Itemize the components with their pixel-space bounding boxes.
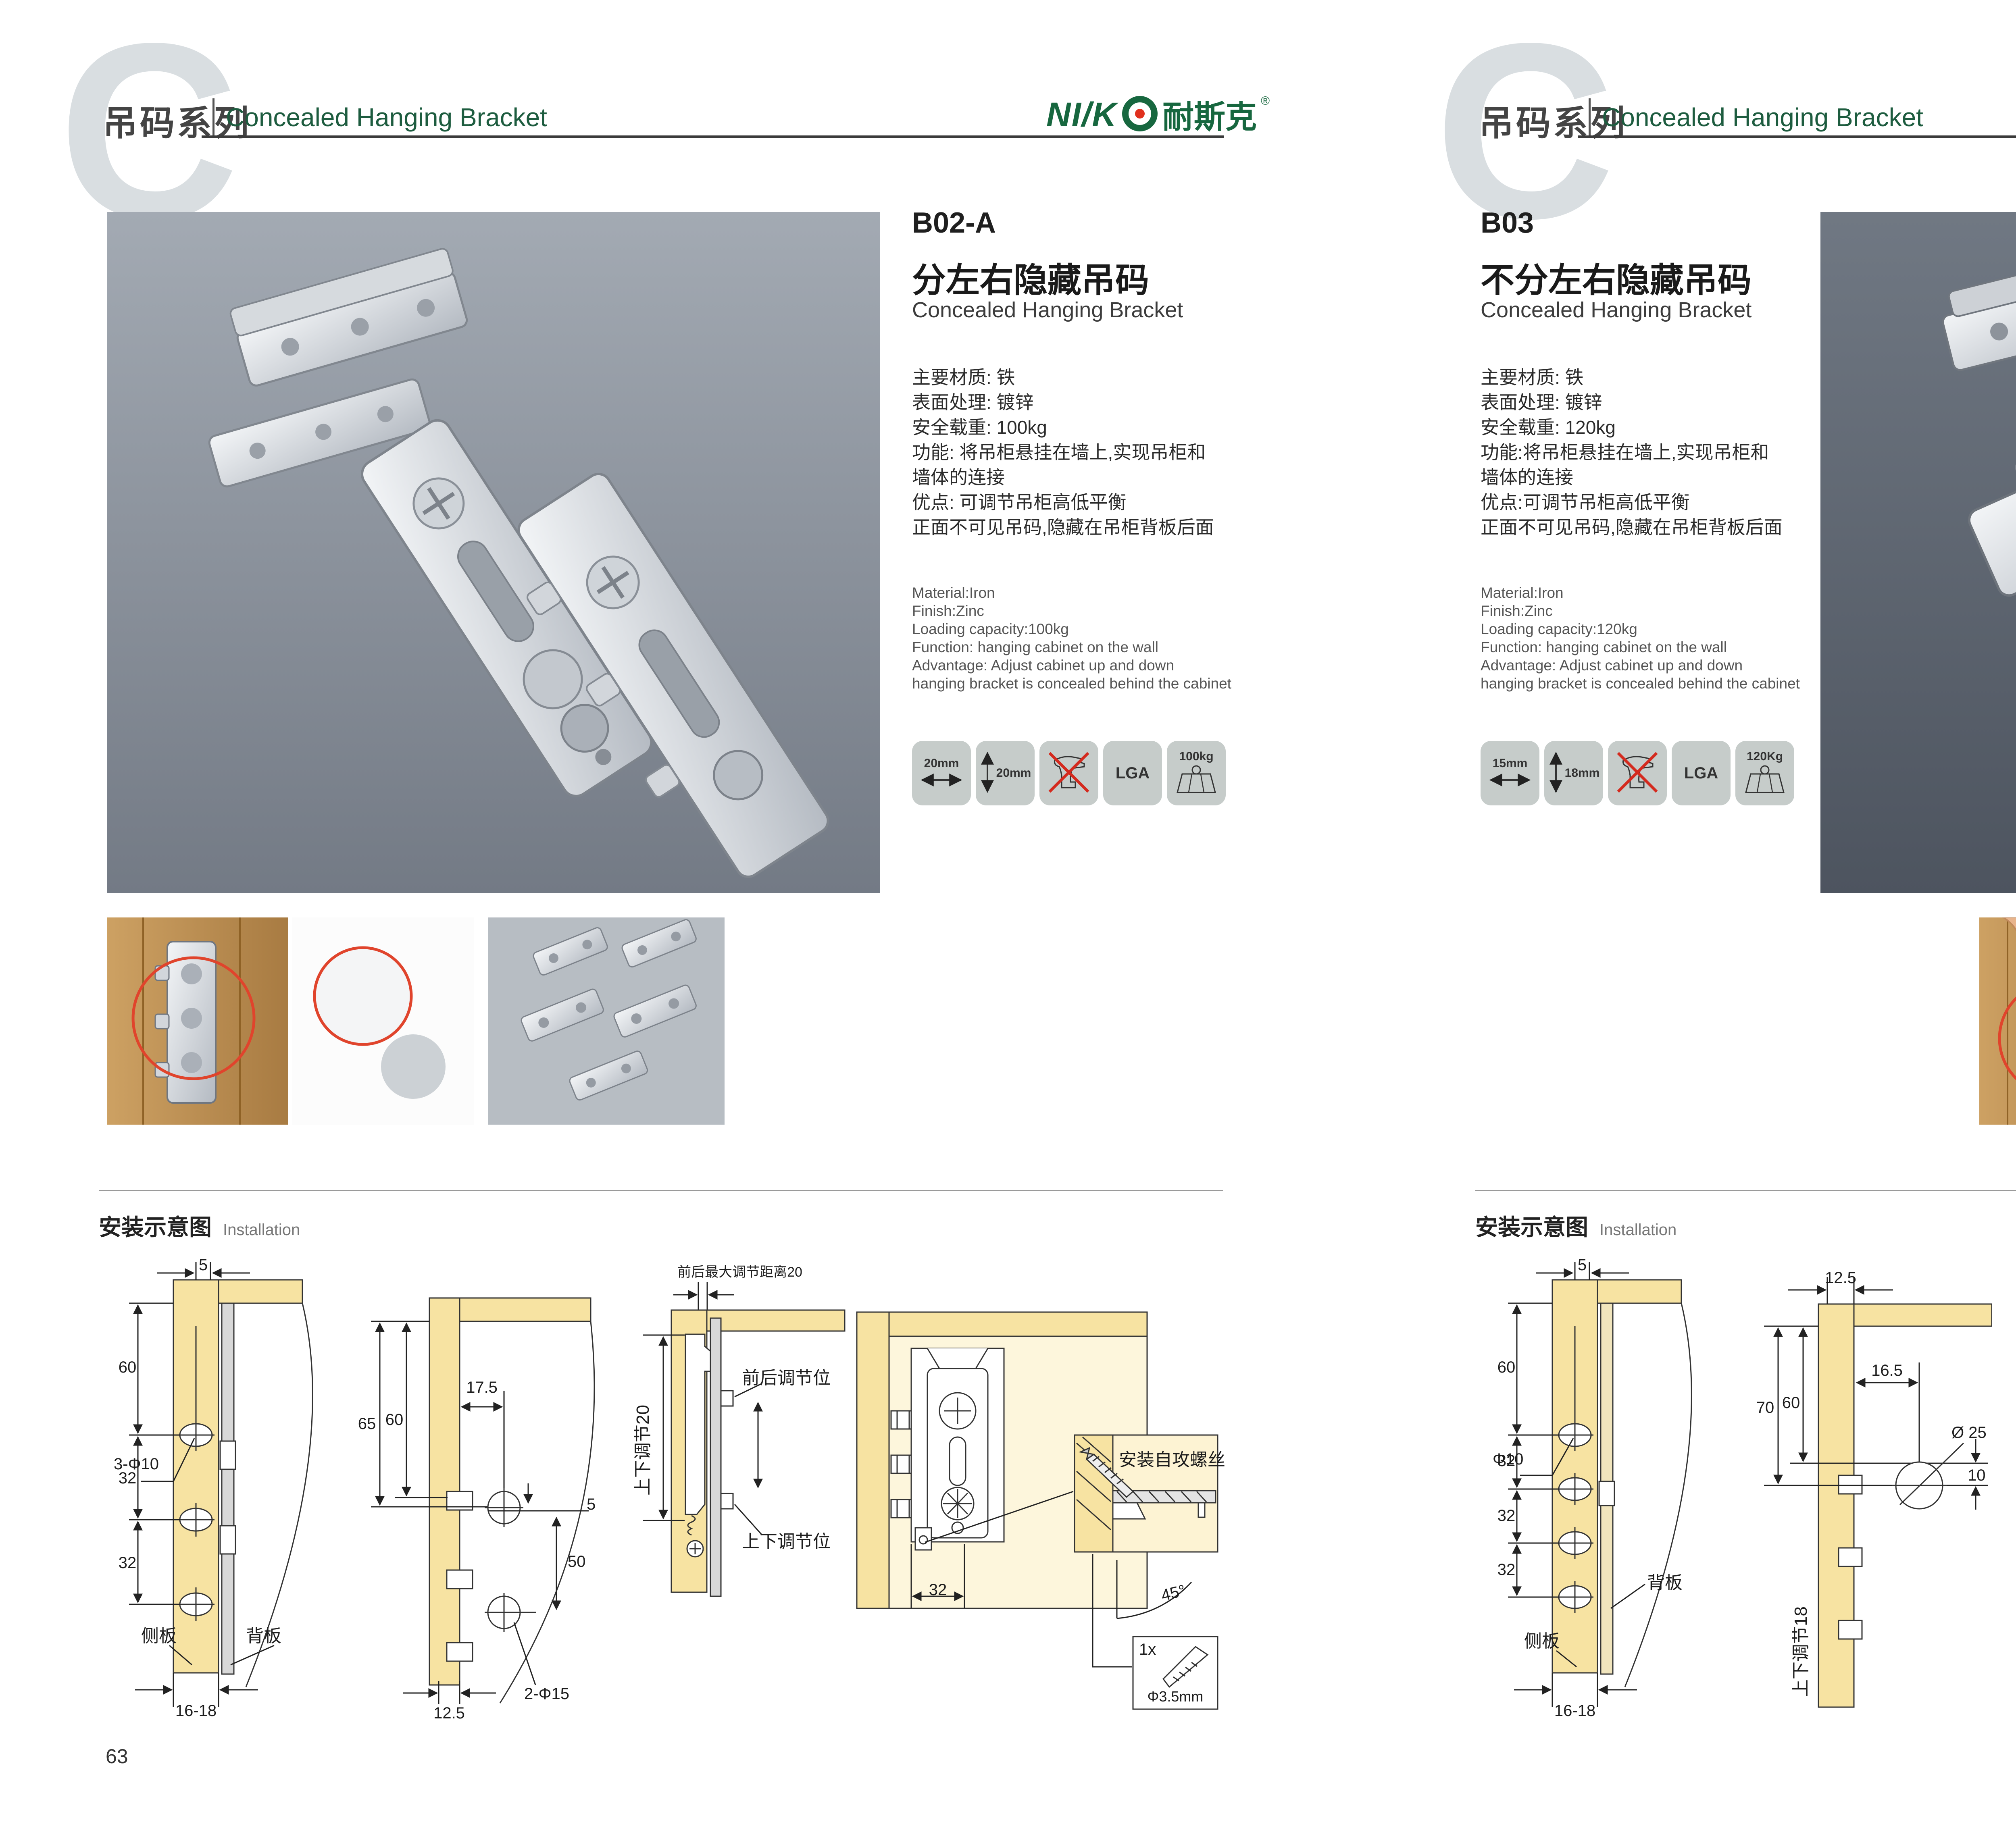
spec-line: hanging bracket is concealed behind the … — [912, 674, 1231, 693]
brand-logo: NI/K 耐斯克 ® — [1046, 92, 1270, 137]
diagram-adjustment-side-view: 前后最大调节距离20 上下调节20 前后调节位 上下调节位 — [621, 1258, 851, 1604]
badge-label: 20mm — [924, 757, 959, 770]
product-photo-b03 — [1820, 212, 2016, 893]
product-code: B02-A — [912, 206, 996, 239]
catalog-spread: C 吊码系列 Concealed Hanging Bracket NI/K 耐斯… — [0, 0, 2016, 1847]
brand-cjk: 耐斯克 — [1162, 92, 1257, 137]
dim-pitch: 32 — [1497, 1507, 1516, 1525]
label-max-adjust: 前后最大调节距离20 — [677, 1261, 802, 1281]
installation-heading-en: Installation — [1599, 1221, 1677, 1239]
thumbnail-parts-set — [488, 917, 725, 1125]
installation-heading: 安装示意图 Installation — [99, 1209, 300, 1242]
vertical-arrow-icon — [1548, 748, 1564, 799]
label-side-panel: 侧板 — [1524, 1627, 1560, 1652]
series-title-en: Concealed Hanging Bracket — [1602, 102, 1923, 132]
dim-top: 12.5 — [1825, 1269, 1856, 1287]
feature-badges: 15mm 18mm LGA 120Kg — [1481, 741, 1794, 805]
badge-label: LGA — [1684, 764, 1718, 782]
diagram-back-panel-drilling: 12.5 70 60 16.5 Ø 25 10 上下调节18 — [1726, 1266, 1992, 1717]
horizontal-arrow-icon — [1486, 772, 1534, 790]
dim-inner: 60 — [385, 1411, 404, 1429]
brand-registered-mark: ® — [1261, 94, 1270, 108]
badge-width: 20mm — [912, 741, 971, 805]
badge-label: 100kg — [1179, 750, 1213, 763]
product-name-cjk: 不分左右隐藏吊码 — [1481, 253, 1752, 302]
spec-line: 功能:将吊柜悬挂在墙上,实现吊柜和 — [1481, 440, 1783, 465]
spec-line: 正面不可见吊码,隐藏在吊柜背板后面 — [1481, 515, 1783, 540]
badge-lga: LGA — [1672, 741, 1731, 805]
installation-heading-en: Installation — [223, 1221, 300, 1239]
badge-width: 15mm — [1481, 741, 1539, 805]
badge-label: 18mm — [1565, 766, 1600, 780]
spec-line: Material:Iron — [912, 584, 1231, 602]
feature-badges: 20mm 20mm LGA 100kg — [912, 741, 1226, 805]
dim-panel-thickness: 16-18 — [175, 1702, 217, 1720]
spec-line: 墙体的连接 — [912, 465, 1214, 490]
dim-outer: 70 — [1756, 1399, 1774, 1417]
product-photo-b02a — [107, 212, 880, 893]
label-screw-qty: 1x — [1139, 1641, 1156, 1659]
dim-top-offset: 60 — [119, 1358, 137, 1377]
spec-line: 主要材质: 铁 — [912, 365, 1214, 390]
badge-load: 120Kg — [1735, 741, 1794, 805]
spec-line: 表面处理: 镀锌 — [1481, 390, 1783, 415]
spec-line: Loading capacity:100kg — [912, 620, 1231, 638]
badge-height: 18mm — [1544, 741, 1603, 805]
weight-icon — [1174, 765, 1218, 797]
spec-line: 安全载重: 100kg — [912, 415, 1214, 440]
installation-heading-cjk: 安装示意图 — [99, 1209, 212, 1242]
badge-label: LGA — [1116, 764, 1150, 782]
header-divider — [212, 98, 215, 137]
no-drill-icon — [1045, 748, 1093, 799]
dim-pitch: 32 — [1497, 1452, 1516, 1470]
spec-line: 墙体的连接 — [1481, 465, 1783, 490]
diagram-bracket-mounted-front: 32 安装自攻螺丝 45° 1x Φ3.5mm — [851, 1302, 1222, 1741]
dim-gap: 5 — [1578, 1256, 1587, 1274]
header-divider — [1589, 98, 1591, 137]
brand-latin: NI/K — [1046, 95, 1117, 134]
thumbnail-installed-on-wood — [107, 917, 288, 1125]
no-drill-icon — [1613, 748, 1662, 799]
spec-line: Function: hanging cabinet on the wall — [1481, 638, 1800, 656]
dim-pitch: 32 — [119, 1469, 137, 1487]
dim-panel-thickness: 16-18 — [1554, 1702, 1595, 1720]
badge-no-drill — [1608, 741, 1667, 805]
badge-no-drill — [1039, 741, 1098, 805]
weight-icon — [1743, 765, 1787, 797]
label-front-back-adjust: 前后调节位 — [742, 1363, 831, 1389]
badge-label: 20mm — [996, 766, 1031, 780]
label-side-panel: 侧板 — [141, 1621, 177, 1647]
spec-line: 正面不可见吊码,隐藏在吊柜背板后面 — [912, 515, 1214, 540]
product-specs-cjk: 主要材质: 铁 表面处理: 镀锌 安全载重: 120kg 功能:将吊柜悬挂在墙上… — [1481, 365, 1783, 540]
dim-pitch: 32 — [119, 1554, 137, 1572]
dim-offset: 10 — [1968, 1466, 1986, 1485]
brand-target-o-icon — [1121, 95, 1158, 134]
spec-line: 优点: 可调节吊柜高低平衡 — [912, 490, 1214, 515]
diagram-side-panel-drilling: 5 60 3-Φ10 32 32 侧板 背板 16-18 — [113, 1262, 355, 1721]
spec-line: hanging bracket is concealed behind the … — [1481, 674, 1800, 693]
dim-edge-to-hole: 16.5 — [1871, 1362, 1903, 1380]
dim-edge-to-hole: 17.5 — [466, 1379, 498, 1397]
spec-line: 安全载重: 120kg — [1481, 415, 1783, 440]
dim-gap: 5 — [199, 1256, 208, 1274]
label-back-panel: 背板 — [1647, 1568, 1683, 1594]
section-divider — [1475, 1190, 2016, 1191]
product-name-en: Concealed Hanging Bracket — [912, 297, 1183, 322]
hole-spec: 2-Φ15 — [524, 1685, 569, 1703]
spec-line: Finish:Zinc — [912, 602, 1231, 620]
label-back-panel: 背板 — [246, 1621, 281, 1647]
dim-bottom: 12.5 — [433, 1704, 465, 1722]
dim-outer: 65 — [358, 1415, 376, 1433]
hole-spec: Ø 25 — [1951, 1424, 1987, 1442]
installation-heading: 安装示意图 Installation — [1475, 1209, 1677, 1242]
dim-pitch: 32 — [1497, 1561, 1516, 1579]
badge-load: 100kg — [1167, 741, 1226, 805]
dim-top-offset: 60 — [1497, 1358, 1516, 1377]
product-name-cjk: 分左右隐藏吊码 — [912, 253, 1149, 302]
spec-line: 主要材质: 铁 — [1481, 365, 1783, 390]
spec-line: Advantage: Adjust cabinet up and down — [912, 656, 1231, 674]
label-vertical-adjust: 上下调节20 — [628, 1405, 654, 1495]
spec-line: Finish:Zinc — [1481, 602, 1800, 620]
spec-line: 优点:可调节吊柜高低平衡 — [1481, 490, 1783, 515]
diagram-side-panel-drilling: 5 60 Φ10 32 32 32 侧板 背板 16-18 — [1492, 1262, 1734, 1721]
label-screw-dia: Φ3.5mm — [1148, 1688, 1204, 1705]
dim-offset: 5 — [587, 1495, 596, 1514]
product-code: B03 — [1481, 206, 1534, 239]
label-self-tapping-screw: 安装自攻螺丝 — [1119, 1445, 1225, 1471]
spec-line: 表面处理: 镀锌 — [912, 390, 1214, 415]
spec-line: Material:Iron — [1481, 584, 1800, 602]
spec-line: 功能: 将吊柜悬挂在墙上,实现吊柜和 — [912, 440, 1214, 465]
dim-system-pitch: 32 — [929, 1581, 947, 1599]
label-vertical-adjust: 上下调节18 — [1786, 1606, 1812, 1697]
product-name-en: Concealed Hanging Bracket — [1481, 297, 1752, 322]
series-title-en: Concealed Hanging Bracket — [226, 102, 547, 132]
spec-line: Loading capacity:120kg — [1481, 620, 1800, 638]
label-up-down-adjust: 上下调节位 — [742, 1527, 831, 1553]
page-number: 63 — [106, 1745, 128, 1768]
spec-line: Advantage: Adjust cabinet up and down — [1481, 656, 1800, 674]
badge-label: 120Kg — [1747, 750, 1783, 763]
installation-heading-cjk: 安装示意图 — [1475, 1209, 1588, 1242]
vertical-arrow-icon — [979, 748, 996, 799]
thumbnail-installed-on-wood — [1979, 917, 2016, 1125]
dim-inner: 60 — [1782, 1394, 1800, 1412]
header-rule — [1578, 135, 2016, 138]
dim-hole-span: 50 — [568, 1553, 586, 1571]
spec-line: Function: hanging cabinet on the wall — [912, 638, 1231, 656]
diagram-back-panel-drilling: 65 60 17.5 5 50 2-Φ15 12.5 — [347, 1282, 597, 1713]
section-divider — [99, 1190, 1223, 1191]
badge-label: 15mm — [1493, 757, 1528, 770]
badge-lga: LGA — [1103, 741, 1162, 805]
product-specs-cjk: 主要材质: 铁 表面处理: 镀锌 安全载重: 100kg 功能: 将吊柜悬挂在墙… — [912, 365, 1214, 540]
thumbnail-hole-detail — [292, 917, 474, 1125]
product-specs-en: Material:Iron Finish:Zinc Loading capaci… — [912, 584, 1231, 693]
badge-height: 20mm — [976, 741, 1035, 805]
horizontal-arrow-icon — [917, 772, 966, 790]
product-specs-en: Material:Iron Finish:Zinc Loading capaci… — [1481, 584, 1800, 693]
